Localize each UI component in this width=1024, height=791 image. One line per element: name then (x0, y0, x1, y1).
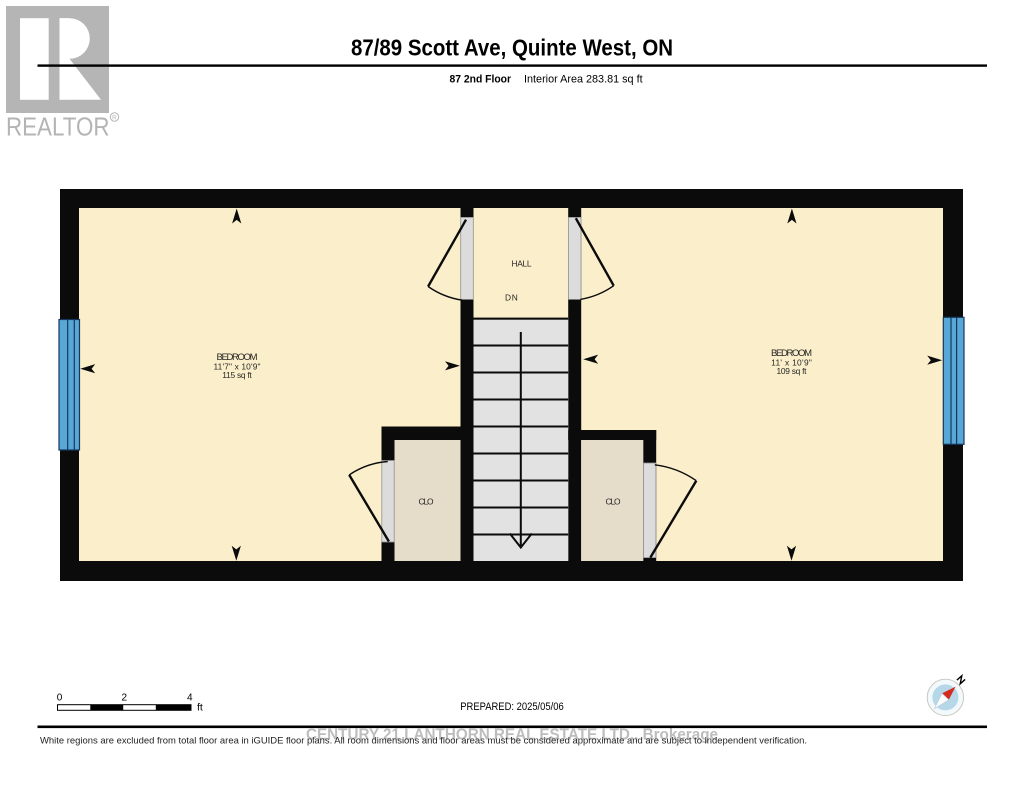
svg-text:HALL: HALL (512, 259, 532, 269)
svg-text:PREPARED: 2025/05/06: PREPARED: 2025/05/06 (460, 701, 564, 713)
svg-text:115 sq ft: 115 sq ft (222, 370, 252, 380)
svg-text:4: 4 (187, 693, 193, 704)
svg-text:CLO: CLO (419, 497, 434, 507)
svg-text:87/89 Scott Ave, Quinte West,: 87/89 Scott Ave, Quinte West, ON (351, 35, 673, 61)
svg-text:DN: DN (505, 293, 518, 303)
svg-text:87 2nd Floor: 87 2nd Floor (450, 74, 512, 86)
svg-text:109 sq ft: 109 sq ft (777, 366, 808, 376)
svg-text:2: 2 (122, 693, 128, 704)
svg-text:CLO: CLO (606, 497, 621, 507)
svg-text:R: R (112, 115, 117, 122)
svg-text:Interior Area 283.81 sq ft: Interior Area 283.81 sq ft (524, 74, 643, 86)
svg-text:ft: ft (197, 702, 203, 714)
svg-text:0: 0 (57, 693, 63, 704)
svg-text:REALTOR: REALTOR (6, 114, 110, 142)
svg-text:White regions are excluded fro: White regions are excluded from total fl… (40, 735, 807, 746)
